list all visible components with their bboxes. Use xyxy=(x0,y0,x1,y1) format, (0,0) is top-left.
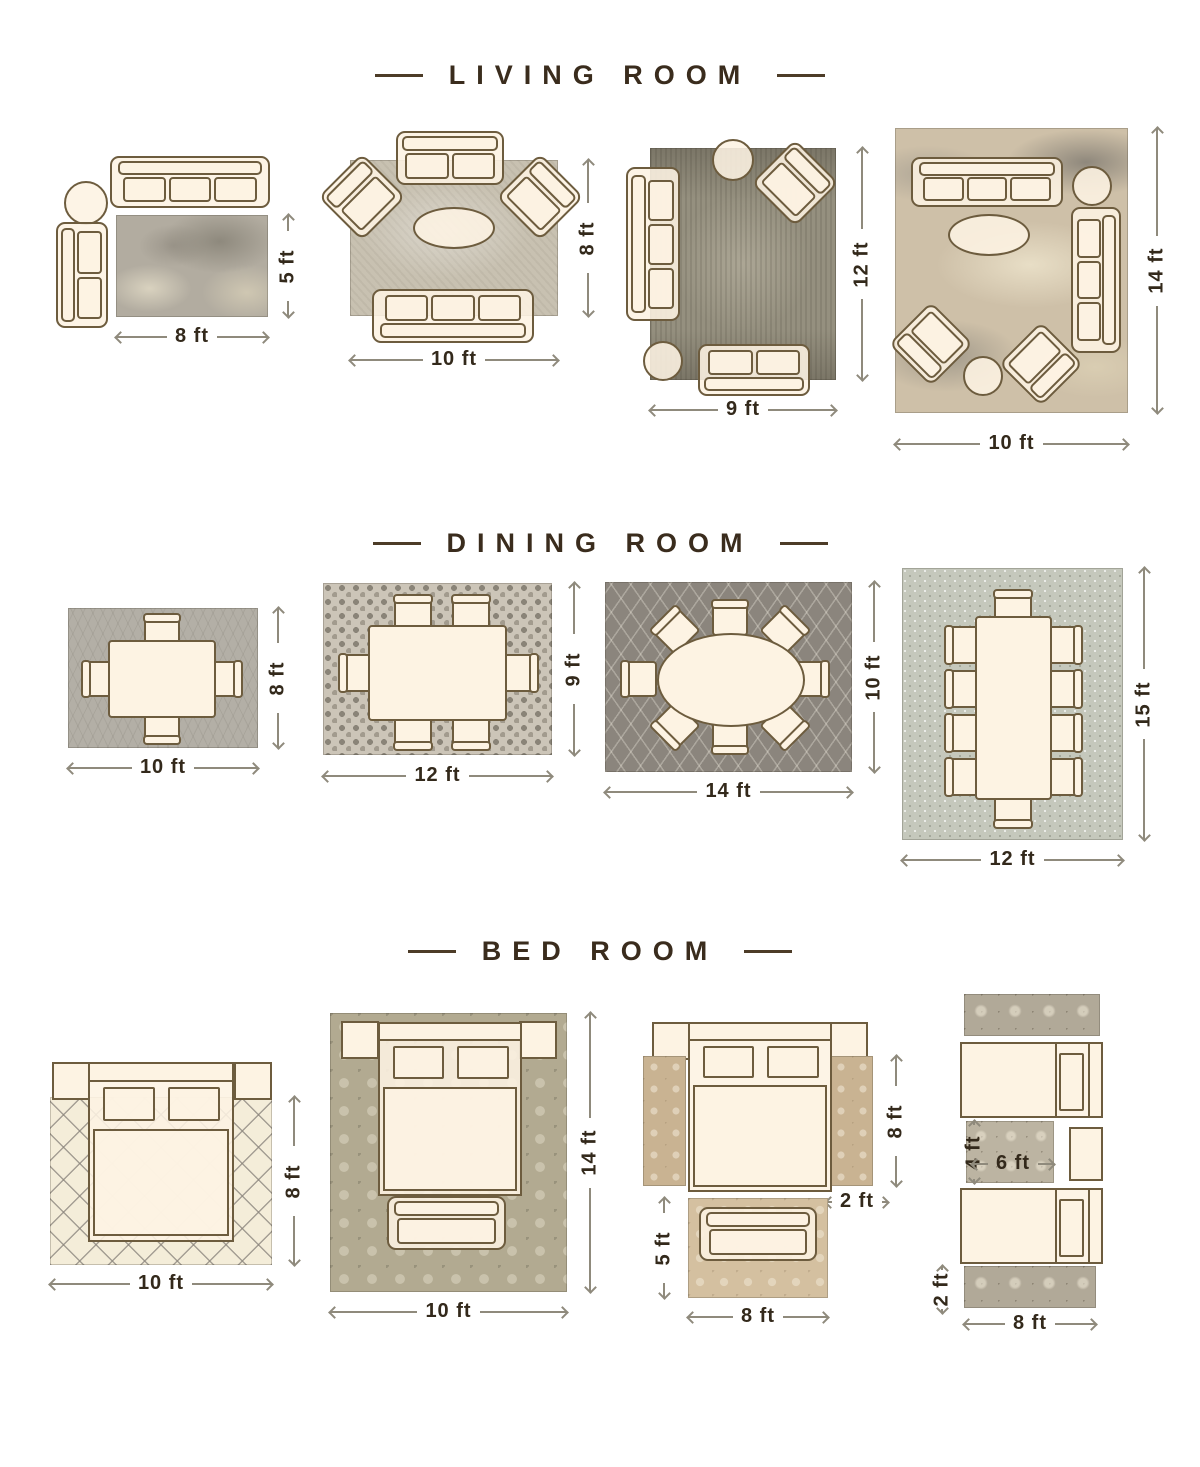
sofa-three-seat xyxy=(626,167,680,321)
pillow xyxy=(103,1087,155,1121)
pillow xyxy=(393,1046,445,1079)
runner-length-dimension-label: 8 ft xyxy=(1013,1312,1047,1335)
oval-coffee-table xyxy=(948,214,1030,256)
runner-rug xyxy=(964,994,1100,1036)
width-dimension-label: 10 ft xyxy=(140,756,186,779)
section-heading: LIVING ROOM xyxy=(449,60,752,91)
dining-chair xyxy=(712,602,748,636)
height-dimension-label: 14 ft xyxy=(1146,247,1169,293)
bedroom-loveseat xyxy=(699,1207,817,1261)
height-dimension-label: 8 ft xyxy=(577,221,600,255)
section-heading: BED ROOM xyxy=(482,936,719,967)
blanket xyxy=(383,1087,517,1191)
round-side-table xyxy=(643,341,683,381)
loveseat-two-seat xyxy=(698,344,810,396)
height-dimension: 8 ft xyxy=(266,608,290,748)
headboard xyxy=(88,1062,234,1082)
width-dimension: 12 ft xyxy=(902,848,1123,871)
blanket xyxy=(93,1129,229,1236)
pillow xyxy=(168,1087,220,1121)
width-dimension: 12 ft xyxy=(323,764,552,787)
round-side-table xyxy=(1072,166,1112,206)
width-dimension-label: 10 ft xyxy=(988,432,1034,455)
sofa-three-seat xyxy=(110,156,270,208)
blanket xyxy=(960,1042,1057,1118)
height-dimension-label: 8 ft xyxy=(283,1164,306,1198)
oval-dining-table xyxy=(657,633,805,727)
bed xyxy=(688,1022,832,1192)
nightstand xyxy=(341,1021,379,1059)
bedside-runner-rug xyxy=(830,1056,873,1186)
title-dash-right xyxy=(744,950,792,953)
title-dash-left xyxy=(375,74,423,77)
loveseat-two-seat xyxy=(56,222,108,328)
pillow xyxy=(1059,1053,1084,1110)
runner-rug xyxy=(964,1266,1096,1308)
mid-rug-width-dimension-label: 6 ft xyxy=(996,1152,1030,1175)
height-dimension-label: 8 ft xyxy=(267,661,290,695)
blanket xyxy=(693,1085,827,1186)
width-dimension: 10 ft xyxy=(68,756,258,779)
loveseat-two-seat xyxy=(396,131,504,185)
headboard xyxy=(1088,1042,1103,1118)
width-dimension-label: 12 ft xyxy=(414,764,460,787)
sofa-three-seat xyxy=(1071,207,1121,353)
width-dimension: 10 ft xyxy=(895,432,1128,455)
living-rug-8x5 xyxy=(116,215,268,317)
width-dimension: 9 ft xyxy=(650,398,836,421)
runner-height-dimension-label: 8 ft xyxy=(885,1104,908,1138)
runner-width-dimension-label: 2 ft xyxy=(840,1190,874,1213)
width-dimension: 14 ft xyxy=(605,780,852,803)
height-dimension-label: 15 ft xyxy=(1133,681,1156,727)
foot-rug-height-dimension-label: 5 ft xyxy=(653,1231,676,1265)
pillow xyxy=(1059,1199,1084,1256)
foot-rug-width-dimension: 8 ft xyxy=(688,1305,828,1328)
bedside-runner-rug xyxy=(643,1056,686,1186)
oval-coffee-table xyxy=(413,207,495,249)
headboard xyxy=(1088,1188,1103,1264)
sofa-three-seat xyxy=(372,289,534,343)
height-dimension: 12 ft xyxy=(850,148,874,380)
nightstand xyxy=(519,1021,557,1059)
height-dimension-label: 5 ft xyxy=(277,249,300,283)
height-dimension: 9 ft xyxy=(562,583,586,755)
dining-table xyxy=(975,616,1052,800)
dining-room-section-title: DINING ROOM xyxy=(0,528,1200,559)
width-dimension-label: 14 ft xyxy=(705,780,751,803)
twin-bed xyxy=(960,1188,1103,1264)
title-dash-left xyxy=(408,950,456,953)
width-dimension-label: 10 ft xyxy=(431,348,477,371)
height-dimension: 5 ft xyxy=(276,215,300,317)
width-dimension: 10 ft xyxy=(50,1272,272,1295)
nightstand xyxy=(234,1062,272,1100)
mid-rug-width-dimension: 6 ft xyxy=(972,1152,1054,1175)
round-side-table xyxy=(712,139,754,181)
foot-rug-width-dimension-label: 8 ft xyxy=(741,1305,775,1328)
round-side-table xyxy=(64,181,108,225)
width-dimension-label: 10 ft xyxy=(425,1300,471,1323)
nightstand xyxy=(652,1022,690,1060)
height-dimension: 15 ft xyxy=(1132,568,1156,840)
height-dimension: 10 ft xyxy=(862,582,886,772)
bed xyxy=(88,1062,234,1242)
round-side-table xyxy=(963,356,1003,396)
runner-height-dimension: 8 ft xyxy=(884,1056,908,1186)
living-room-section-title: LIVING ROOM xyxy=(0,60,1200,91)
pillow xyxy=(457,1046,509,1079)
width-dimension-label: 8 ft xyxy=(175,325,209,348)
width-dimension-label: 10 ft xyxy=(138,1272,184,1295)
height-dimension-label: 14 ft xyxy=(579,1129,602,1175)
section-heading: DINING ROOM xyxy=(447,528,754,559)
nightstand xyxy=(830,1022,868,1060)
headboard xyxy=(378,1022,522,1041)
runner-length-dimension: 8 ft xyxy=(964,1312,1096,1335)
height-dimension-label: 12 ft xyxy=(851,241,874,287)
title-dash-left xyxy=(373,542,421,545)
pillow xyxy=(703,1046,755,1078)
blanket xyxy=(960,1188,1057,1264)
dining-chair xyxy=(623,661,657,697)
runner-width-dimension: 2 ft xyxy=(930,1266,954,1308)
title-dash-right xyxy=(777,74,825,77)
nightstand xyxy=(1069,1127,1103,1181)
bedroom-bench xyxy=(387,1196,506,1250)
bed-room-section-title: BED ROOM xyxy=(0,936,1200,967)
headboard xyxy=(688,1022,832,1041)
rug-size-guide: LIVING ROOM 5 ft 8 ft 8 ft 10 ft 12 ft 9… xyxy=(0,0,1200,1467)
width-dimension-label: 9 ft xyxy=(726,398,760,421)
pillow xyxy=(767,1046,819,1078)
foot-rug-height-dimension: 5 ft xyxy=(652,1198,676,1298)
height-dimension: 14 ft xyxy=(1145,128,1169,413)
height-dimension: 14 ft xyxy=(578,1013,602,1292)
twin-bed xyxy=(960,1042,1103,1118)
width-dimension: 10 ft xyxy=(330,1300,567,1323)
width-dimension-label: 12 ft xyxy=(989,848,1035,871)
runner-width-dimension: 2 ft xyxy=(826,1190,888,1213)
sofa-three-seat xyxy=(911,157,1063,207)
width-dimension: 8 ft xyxy=(116,325,268,348)
title-dash-right xyxy=(780,542,828,545)
nightstand xyxy=(52,1062,90,1100)
dining-table xyxy=(368,625,507,721)
height-dimension: 8 ft xyxy=(282,1097,306,1265)
height-dimension: 8 ft xyxy=(576,160,600,316)
width-dimension: 10 ft xyxy=(350,348,558,371)
height-dimension-label: 9 ft xyxy=(563,652,586,686)
height-dimension-label: 10 ft xyxy=(863,654,886,700)
bed xyxy=(378,1022,522,1196)
dining-table xyxy=(108,640,216,718)
